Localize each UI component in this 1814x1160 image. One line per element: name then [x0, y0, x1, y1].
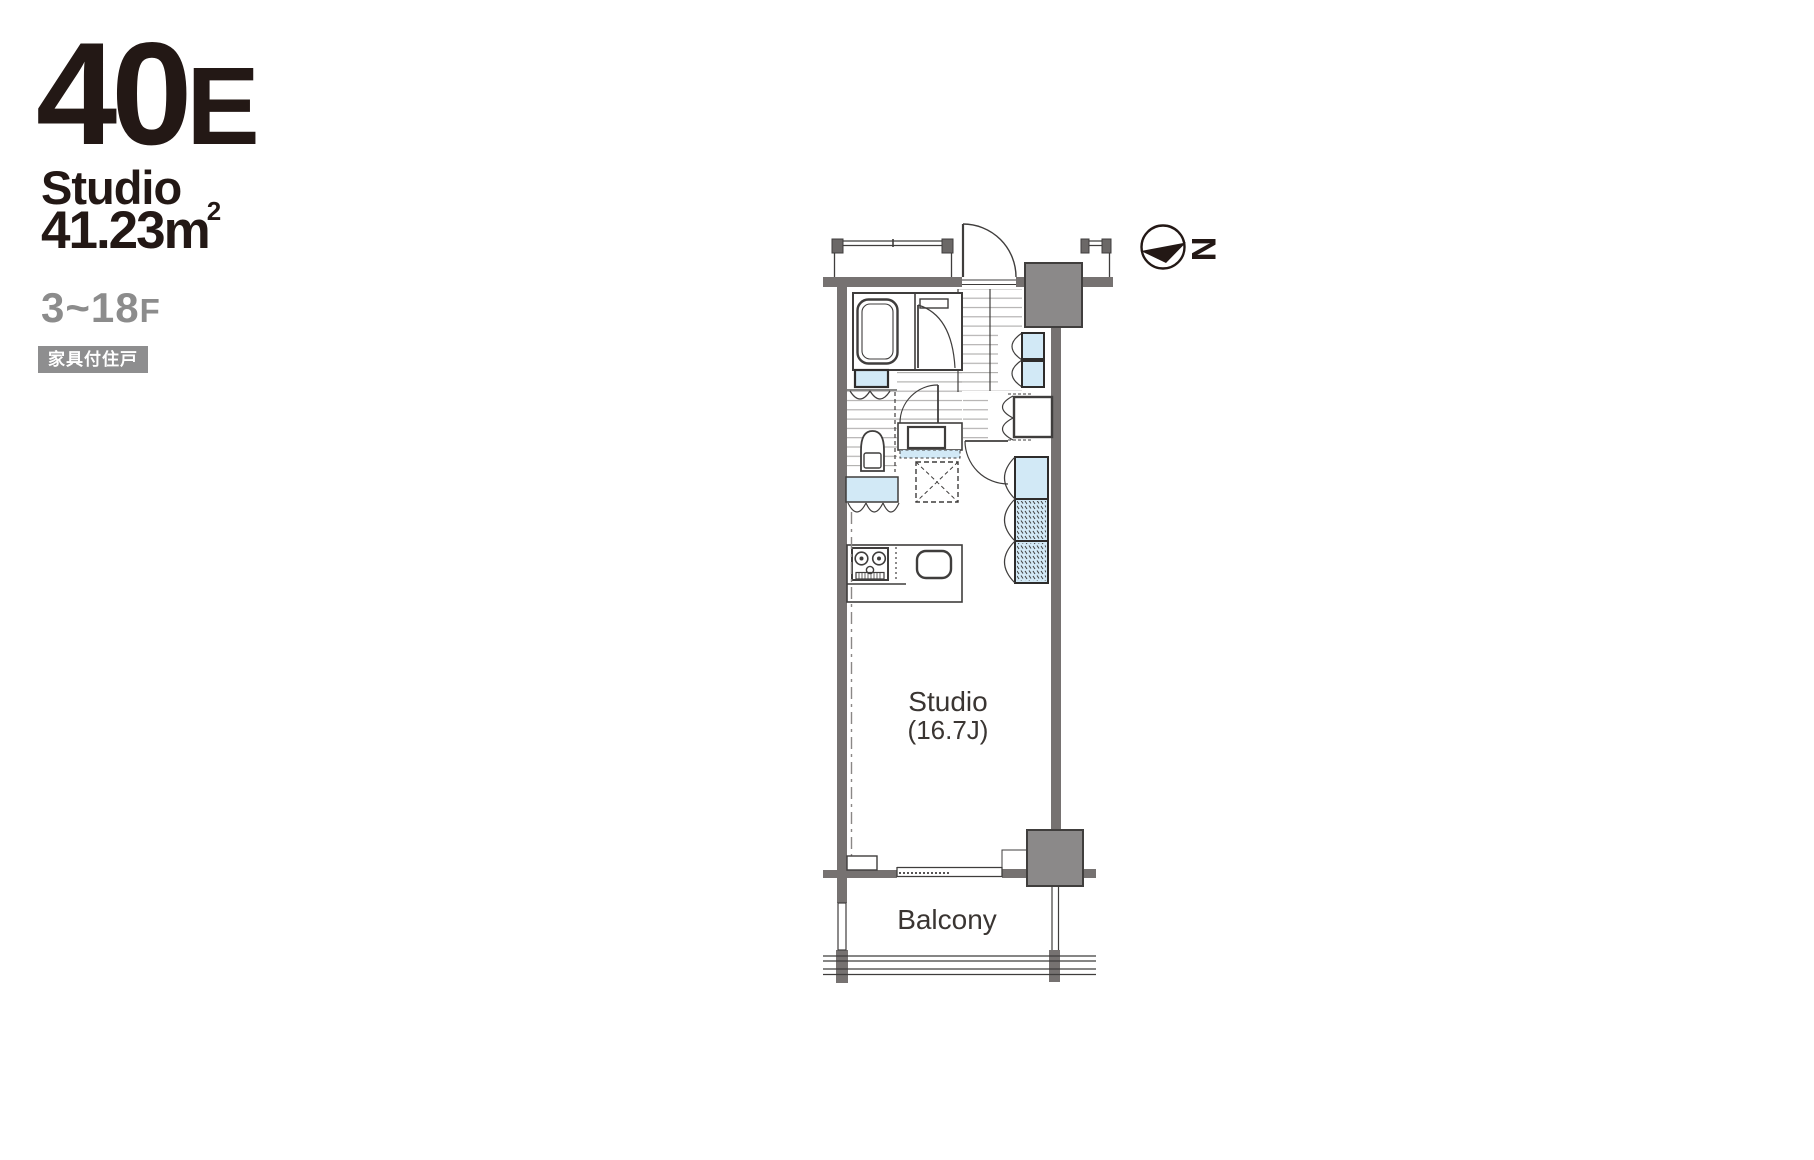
balcony-label: Balcony — [897, 904, 997, 935]
kitchen — [847, 545, 962, 602]
bathtub — [858, 300, 898, 364]
hanger-area — [1017, 501, 1046, 539]
studio-room-label: Studio — [908, 686, 987, 717]
north-indicator: N — [1141, 226, 1222, 269]
column-bottom-right — [1027, 830, 1083, 886]
balcony-side-glass — [838, 903, 846, 950]
floor-step — [847, 856, 877, 870]
lower-closet — [1005, 457, 1049, 583]
bathroom — [853, 293, 962, 370]
washbasin — [855, 370, 888, 387]
north-letter: N — [1184, 237, 1222, 262]
kitchen-sink — [917, 551, 951, 578]
vanity — [846, 477, 899, 512]
room-door — [965, 441, 1008, 484]
studio-room-size: (16.7J) — [908, 715, 989, 745]
floor-plan-svg: N Studio (16.7J) Balcony — [0, 0, 1814, 1160]
refrigerator-space — [916, 462, 958, 502]
entrance-door — [962, 224, 1016, 285]
folding-door — [1005, 457, 1016, 583]
column-top-right — [1025, 263, 1082, 327]
hanger-area — [1017, 543, 1046, 581]
washing-machine-space — [898, 423, 962, 458]
